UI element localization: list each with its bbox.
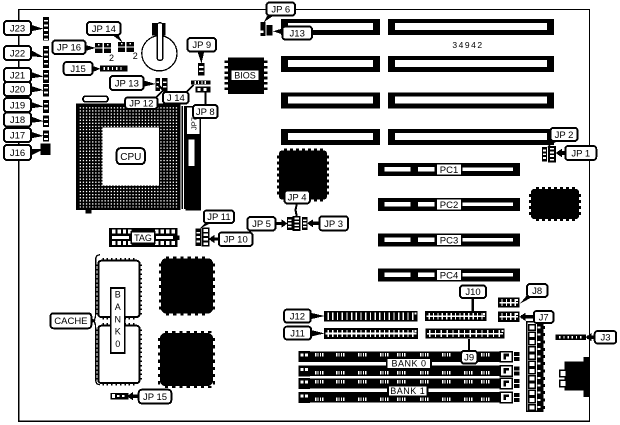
svg-text:J 14: J 14: [167, 93, 185, 104]
svg-text:JP 9: JP 9: [192, 40, 211, 51]
svg-text:JP 4: JP 4: [288, 192, 307, 203]
svg-text:J9: J9: [464, 353, 474, 364]
svg-text:JP 14: JP 14: [92, 24, 116, 35]
svg-text:2: 2: [109, 53, 114, 63]
svg-text:J20: J20: [10, 84, 25, 95]
svg-text:JP 13: JP 13: [115, 78, 139, 89]
svg-text:B: B: [115, 290, 121, 300]
svg-text:34942: 34942: [452, 40, 483, 50]
svg-text:BANK 1: BANK 1: [390, 386, 425, 396]
svg-text:J22: J22: [10, 48, 25, 59]
svg-text:J15: J15: [70, 64, 85, 75]
svg-text:JP 10: JP 10: [224, 235, 248, 246]
svg-text:JP 2: JP 2: [555, 130, 574, 141]
svg-text:0: 0: [115, 339, 120, 349]
svg-text:J7: J7: [539, 312, 549, 323]
svg-text:PC3: PC3: [440, 236, 458, 247]
svg-text:N: N: [114, 314, 121, 324]
svg-text:CACHE: CACHE: [54, 316, 87, 327]
svg-text:J23: J23: [10, 23, 25, 34]
svg-text:JP 5: JP 5: [252, 219, 271, 230]
svg-text:JP 11: JP 11: [207, 212, 230, 223]
svg-text:J11: J11: [290, 329, 305, 340]
svg-text:J19: J19: [10, 100, 25, 111]
svg-text:J12: J12: [290, 312, 305, 323]
svg-text:JP 15: JP 15: [143, 392, 167, 403]
svg-text:PC4: PC4: [440, 271, 458, 282]
svg-text:PC2: PC2: [440, 200, 458, 211]
svg-text:JP 6: JP 6: [271, 4, 290, 15]
svg-text:J10: J10: [465, 287, 480, 298]
svg-text:JP 12: JP 12: [129, 99, 153, 110]
svg-text:PC1: PC1: [440, 165, 458, 176]
svg-text:CPU: CPU: [120, 152, 141, 163]
svg-text:J13: J13: [290, 28, 305, 39]
svg-text:BANK 0: BANK 0: [391, 358, 426, 368]
svg-text:J18: J18: [10, 115, 25, 126]
svg-text:K: K: [115, 327, 121, 337]
svg-text:TAG: TAG: [134, 233, 152, 243]
svg-text:BIOS: BIOS: [234, 70, 256, 80]
svg-text:J8: J8: [532, 286, 542, 297]
svg-text:JP 8: JP 8: [196, 107, 215, 118]
svg-text:A: A: [115, 302, 121, 312]
svg-text:J21: J21: [10, 70, 25, 81]
svg-text:J3: J3: [600, 333, 610, 344]
svg-text:JP 3: JP 3: [324, 219, 343, 230]
svg-text:JP 1: JP 1: [571, 148, 590, 159]
svg-text:2: 2: [133, 51, 138, 61]
svg-text:J17: J17: [10, 130, 25, 141]
svg-text:J16: J16: [10, 148, 25, 159]
svg-text:JP 16: JP 16: [57, 43, 81, 54]
